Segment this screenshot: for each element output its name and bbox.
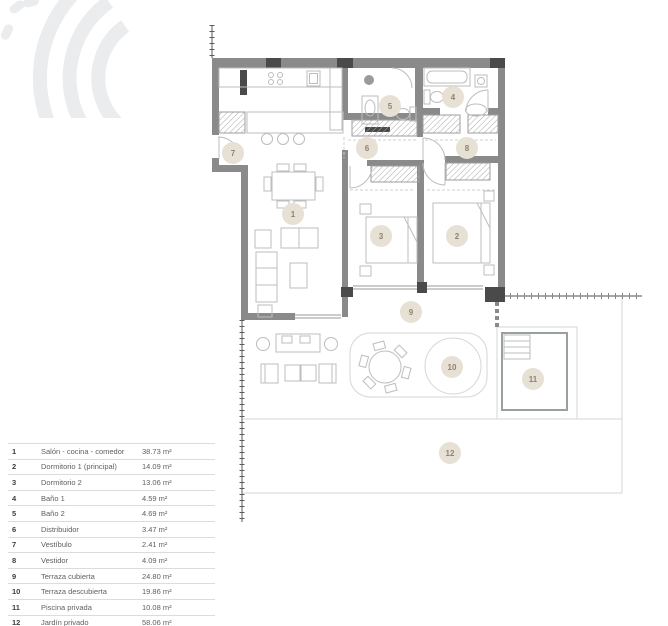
legend-room-area: 13.06 m² <box>142 478 215 487</box>
legend-row: 5Baño 24.69 m² <box>8 506 215 522</box>
legend-room-number: 9 <box>8 572 41 581</box>
svg-text:3: 3 <box>379 232 384 241</box>
legend-room-area: 10.08 m² <box>142 603 215 612</box>
dining-furniture <box>264 164 323 208</box>
svg-text:2: 2 <box>455 232 460 241</box>
legend-room-number: 2 <box>8 462 41 471</box>
legend-row: 8Vestidor4.09 m² <box>8 553 215 569</box>
legend-room-area: 4.59 m² <box>142 494 215 503</box>
legend-row: 11Piscina privada10.08 m² <box>8 600 215 616</box>
legend-room-area: 19.86 m² <box>142 587 215 596</box>
legend-room-area: 4.09 m² <box>142 556 215 565</box>
svg-text:9: 9 <box>409 308 414 317</box>
legend-room-name: Vestíbulo <box>41 540 142 549</box>
legend-row: 7Vestíbulo2.41 m² <box>8 538 215 554</box>
legend-row: 10Terraza descubierta19.86 m² <box>8 584 215 600</box>
legend-room-name: Terraza cubierta <box>41 572 142 581</box>
room-badge: 3 <box>370 225 392 247</box>
room-badge: 9 <box>400 301 422 323</box>
legend-room-name: Dormitorio 2 <box>41 478 142 487</box>
outdoor-table <box>359 341 411 393</box>
legend-room-name: Salón - cocina - comedor <box>41 447 142 456</box>
legend-row: 9Terraza cubierta24.80 m² <box>8 569 215 585</box>
legend-room-name: Baño 2 <box>41 509 142 518</box>
legend-room-number: 4 <box>8 494 41 503</box>
svg-text:6: 6 <box>365 144 370 153</box>
legend-room-number: 12 <box>8 618 41 626</box>
svg-text:4: 4 <box>451 93 456 102</box>
terrace-furniture <box>257 334 338 383</box>
legend-room-number: 1 <box>8 447 41 456</box>
legend-row: 3Dormitorio 213.06 m² <box>8 475 215 491</box>
room-badge: 12 <box>439 442 461 464</box>
legend-room-area: 14.09 m² <box>142 462 215 471</box>
legend-room-number: 7 <box>8 540 41 549</box>
legend-room-area: 4.69 m² <box>142 509 215 518</box>
svg-text:8: 8 <box>465 144 470 153</box>
legend-room-number: 6 <box>8 525 41 534</box>
legend-room-area: 24.80 m² <box>142 572 215 581</box>
legend-room-number: 5 <box>8 509 41 518</box>
legend-room-number: 3 <box>8 478 41 487</box>
legend-room-area: 58.06 m² <box>142 618 215 626</box>
svg-text:5: 5 <box>388 102 393 111</box>
legend-room-name: Jardín privado <box>41 618 142 626</box>
room-badge: 5 <box>379 95 401 117</box>
room-badge: 10 <box>441 356 463 378</box>
svg-text:10: 10 <box>448 363 457 372</box>
legend-room-name: Baño 1 <box>41 494 142 503</box>
legend-room-name: Vestidor <box>41 556 142 565</box>
legend-room-name: Dormitorio 1 (principal) <box>41 462 142 471</box>
room-badge: 11 <box>522 368 544 390</box>
legend-room-name: Terraza descubierta <box>41 587 142 596</box>
legend-room-number: 10 <box>8 587 41 596</box>
room-badge: 1 <box>282 203 304 225</box>
legend-row: 4Baño 14.59 m² <box>8 491 215 507</box>
garden-fence <box>495 296 642 327</box>
floorplan-page: 1 2 3 4 5 6 7 8 9 10 11 12 1Salón - coci… <box>0 0 668 626</box>
room-badges: 1 2 3 4 5 6 7 8 9 10 11 12 <box>222 86 544 464</box>
svg-text:11: 11 <box>529 375 538 384</box>
legend-row: 2Dormitorio 1 (principal)14.09 m² <box>8 460 215 476</box>
glass-doors <box>295 286 483 318</box>
room-badge: 7 <box>222 142 244 164</box>
legend-room-name: Distribuidor <box>41 525 142 534</box>
legend-room-number: 8 <box>8 556 41 565</box>
living-furniture <box>255 228 318 317</box>
legend-room-area: 3.47 m² <box>142 525 215 534</box>
legend-row: 1Salón - cocina - comedor38.73 m² <box>8 443 215 460</box>
legend-row: 6Distribuidor3.47 m² <box>8 522 215 538</box>
exterior-regions <box>243 297 622 493</box>
room-badge: 4 <box>442 86 464 108</box>
legend-row: 12Jardín privado58.06 m² <box>8 616 215 626</box>
svg-text:7: 7 <box>231 149 236 158</box>
legend-room-area: 2.41 m² <box>142 540 215 549</box>
room-badge: 6 <box>356 137 378 159</box>
legend-room-name: Piscina privada <box>41 603 142 612</box>
legend-room-area: 38.73 m² <box>142 447 215 456</box>
svg-text:1: 1 <box>291 210 296 219</box>
legend-table: 1Salón - cocina - comedor38.73 m² 2Dormi… <box>8 443 215 626</box>
legend-room-number: 11 <box>8 603 41 612</box>
room-badge: 8 <box>456 137 478 159</box>
svg-text:12: 12 <box>446 449 455 458</box>
room-badge: 2 <box>446 225 468 247</box>
